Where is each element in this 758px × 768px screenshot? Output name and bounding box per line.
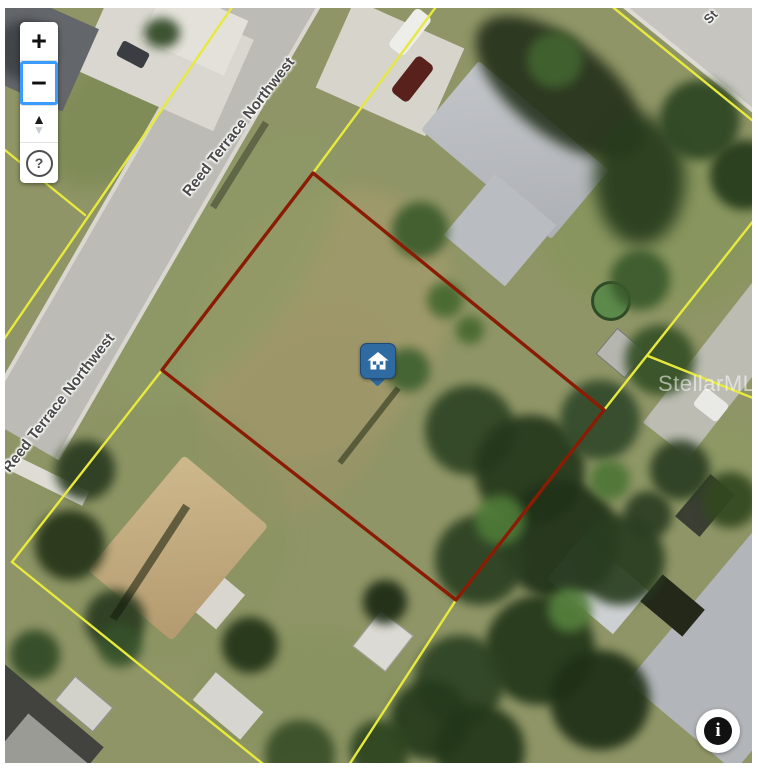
tree-canopy — [222, 617, 278, 673]
zoom-in-button[interactable]: + — [20, 22, 58, 61]
plus-icon: + — [31, 28, 47, 55]
page-margin — [0, 0, 5, 768]
help-button[interactable]: ? — [20, 143, 58, 183]
page-margin — [0, 0, 758, 8]
zoom-out-button[interactable]: − — [20, 61, 58, 106]
tree-canopy — [35, 510, 105, 580]
tree-canopy — [475, 495, 525, 545]
tree-shadow — [363, 580, 407, 624]
tree-canopy — [55, 440, 115, 500]
hedge — [144, 18, 180, 48]
house-icon — [366, 349, 390, 373]
minus-icon: − — [31, 70, 47, 97]
tree-canopy — [10, 630, 60, 680]
property-marker[interactable] — [360, 343, 396, 379]
info-button[interactable]: i — [696, 709, 740, 753]
tree-canopy — [590, 460, 630, 500]
hedge — [702, 472, 758, 528]
tree-canopy — [610, 250, 670, 310]
tree-canopy — [392, 202, 448, 258]
tree-canopy — [550, 650, 650, 750]
page-margin — [752, 0, 758, 768]
tree-canopy — [548, 588, 592, 632]
tree-canopy — [427, 282, 463, 318]
zoom-slider-toggle-button[interactable]: ▲ ▼ — [20, 106, 58, 143]
tree-canopy — [560, 380, 640, 460]
map-canvas[interactable]: Reed Terrace Northwest Reed Terrace Nort… — [0, 0, 758, 768]
page-margin — [0, 763, 758, 768]
hedge — [650, 440, 710, 500]
map-viewport: Reed Terrace Northwest Reed Terrace Nort… — [0, 0, 758, 768]
hedge — [624, 491, 672, 539]
tree-canopy — [456, 316, 484, 344]
question-mark-icon: ? — [26, 150, 53, 177]
tree-canopy — [98, 623, 142, 667]
arrow-down-icon: ▼ — [33, 124, 45, 136]
map-zoom-controls: + − ▲ ▼ ? — [20, 22, 58, 183]
info-icon: i — [704, 717, 732, 745]
tree-canopy — [527, 32, 583, 88]
watermark: StellarMLS — [658, 371, 758, 397]
